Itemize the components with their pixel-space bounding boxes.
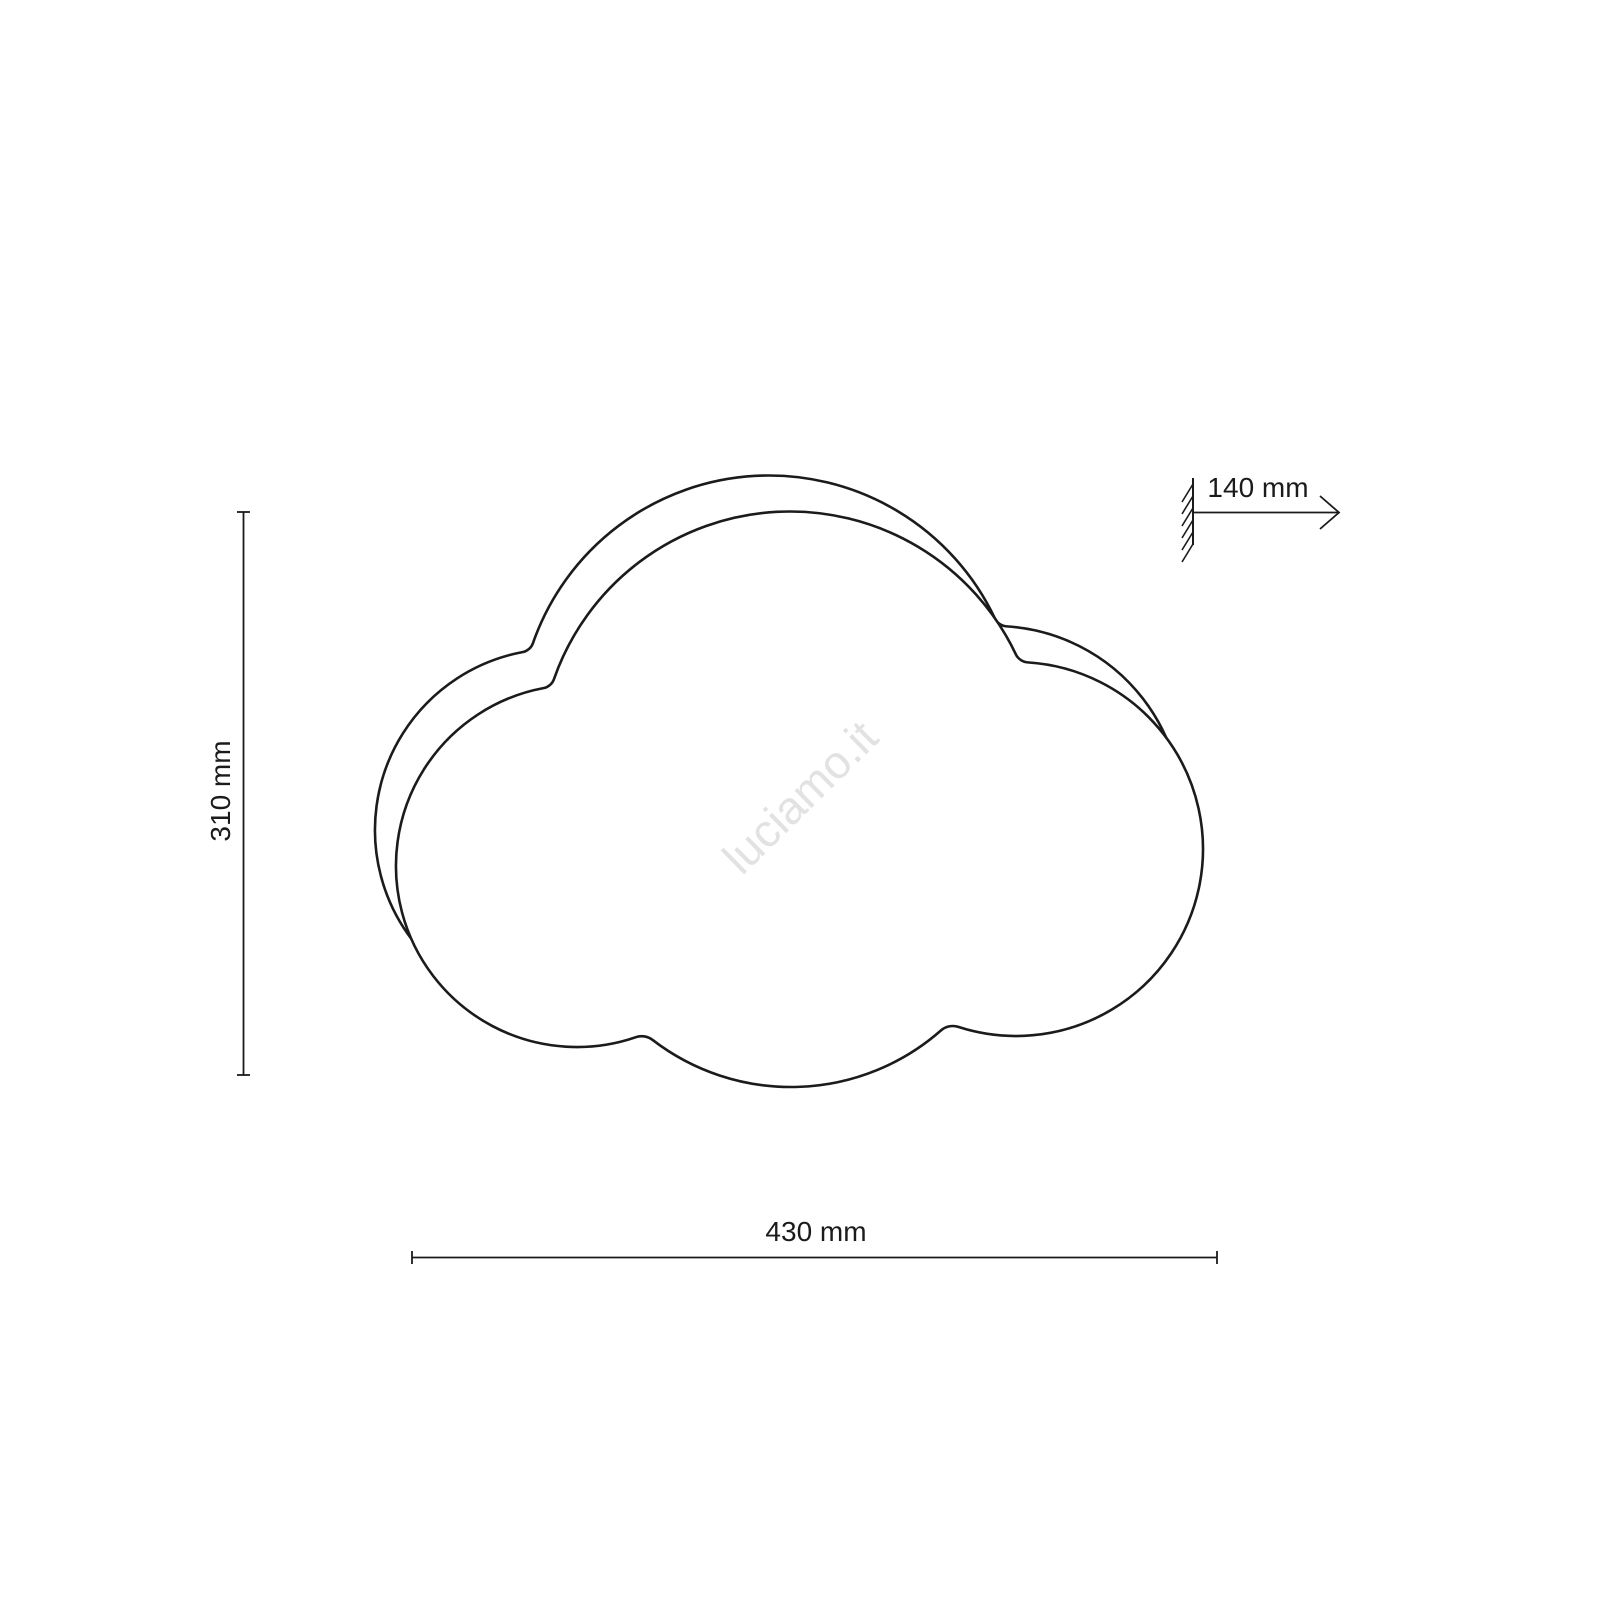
svg-text:310 mm: 310 mm bbox=[205, 740, 236, 841]
svg-text:140 mm: 140 mm bbox=[1207, 472, 1308, 503]
svg-text:430 mm: 430 mm bbox=[765, 1216, 866, 1247]
